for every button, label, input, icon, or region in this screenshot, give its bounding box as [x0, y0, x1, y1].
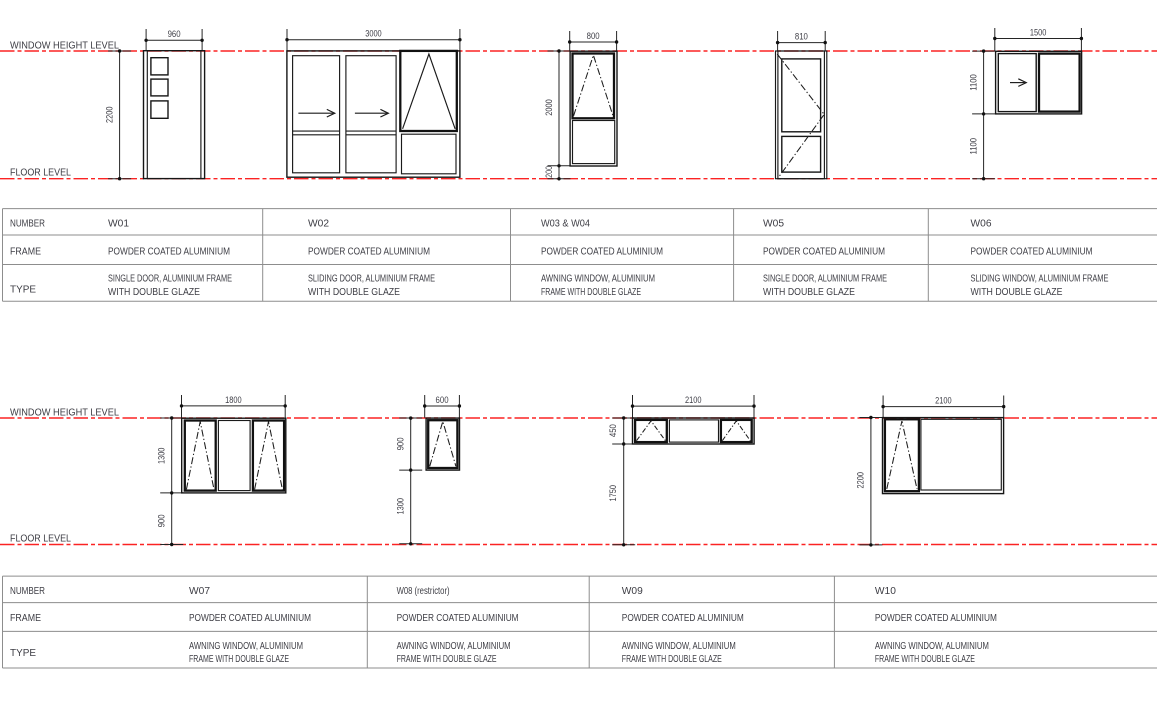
svg-text:W03 & W04: W03 & W04 — [541, 218, 590, 229]
svg-text:TYPE: TYPE — [10, 285, 36, 296]
svg-text:960: 960 — [168, 29, 181, 40]
svg-text:NUMBER: NUMBER — [10, 218, 45, 229]
svg-text:FRAME WITH DOUBLE GLAZE: FRAME WITH DOUBLE GLAZE — [875, 654, 975, 665]
svg-text:1300: 1300 — [395, 498, 406, 515]
svg-text:POWDER COATED ALUMINIUM: POWDER COATED ALUMINIUM — [622, 613, 744, 624]
svg-text:POWDER COATED ALUMINIUM: POWDER COATED ALUMINIUM — [875, 613, 997, 624]
svg-text:WITH DOUBLE GLAZE: WITH DOUBLE GLAZE — [308, 287, 400, 298]
svg-text:FRAME WITH DOUBLE GLAZE: FRAME WITH DOUBLE GLAZE — [189, 654, 289, 665]
svg-text:AWNING WINDOW, ALUMINIUM: AWNING WINDOW, ALUMINIUM — [189, 641, 303, 652]
svg-text:1100: 1100 — [968, 138, 979, 155]
svg-text:POWDER COATED ALUMINIUM: POWDER COATED ALUMINIUM — [541, 246, 663, 257]
svg-text:POWDER COATED ALUMINIUM: POWDER COATED ALUMINIUM — [397, 613, 519, 624]
svg-text:AWNING WINDOW, ALUMINIUM: AWNING WINDOW, ALUMINIUM — [875, 641, 989, 652]
svg-text:600: 600 — [436, 395, 449, 406]
svg-text:AWNING WINDOW, ALUMINIUM: AWNING WINDOW, ALUMINIUM — [541, 274, 655, 285]
svg-text:2200: 2200 — [856, 472, 867, 489]
svg-text:AWNING WINDOW, ALUMINIUM: AWNING WINDOW, ALUMINIUM — [397, 641, 511, 652]
svg-text:2100: 2100 — [935, 396, 952, 407]
svg-text:POWDER COATED ALUMINIUM: POWDER COATED ALUMINIUM — [971, 246, 1093, 257]
svg-text:FRAME WITH DOUBLE GLAZE: FRAME WITH DOUBLE GLAZE — [622, 654, 722, 665]
svg-text:FRAME: FRAME — [10, 613, 41, 624]
svg-text:3000: 3000 — [365, 29, 382, 40]
svg-text:POWDER COATED ALUMINIUM: POWDER COATED ALUMINIUM — [763, 246, 885, 257]
svg-text:FLOOR LEVEL: FLOOR LEVEL — [10, 533, 71, 544]
svg-text:1100: 1100 — [968, 74, 979, 91]
svg-text:POWDER COATED ALUMINIUM: POWDER COATED ALUMINIUM — [108, 246, 230, 257]
svg-text:WITH DOUBLE GLAZE: WITH DOUBLE GLAZE — [763, 287, 855, 298]
svg-text:W05: W05 — [763, 218, 784, 229]
svg-text:SINGLE DOOR, ALUMINIUM FRAME: SINGLE DOOR, ALUMINIUM FRAME — [108, 274, 232, 285]
svg-text:900: 900 — [395, 437, 406, 450]
svg-text:WINDOW HEIGHT LEVEL: WINDOW HEIGHT LEVEL — [10, 40, 119, 51]
svg-text:SLIDING DOOR, ALUMINIUM FRAME: SLIDING DOOR, ALUMINIUM FRAME — [308, 274, 435, 285]
svg-text:W09: W09 — [622, 586, 643, 597]
svg-text:FRAME: FRAME — [10, 246, 41, 257]
svg-text:1800: 1800 — [225, 395, 242, 406]
svg-text:1750: 1750 — [608, 485, 619, 502]
svg-text:W06: W06 — [971, 218, 992, 229]
svg-text:POWDER COATED ALUMINIUM: POWDER COATED ALUMINIUM — [308, 246, 430, 257]
svg-text:810: 810 — [795, 32, 808, 43]
svg-text:WITH DOUBLE GLAZE: WITH DOUBLE GLAZE — [971, 287, 1063, 298]
svg-text:POWDER COATED ALUMINIUM: POWDER COATED ALUMINIUM — [189, 613, 311, 624]
svg-text:W10: W10 — [875, 586, 896, 597]
svg-text:TYPE: TYPE — [10, 648, 36, 659]
svg-text:2200: 2200 — [105, 107, 116, 124]
svg-text:FLOOR LEVEL: FLOOR LEVEL — [10, 167, 71, 178]
svg-text:200: 200 — [544, 166, 555, 178]
svg-text:SINGLE DOOR, ALUMINIUM FRAME: SINGLE DOOR, ALUMINIUM FRAME — [763, 274, 887, 285]
svg-text:W07: W07 — [189, 586, 210, 597]
svg-text:W01: W01 — [108, 218, 129, 229]
svg-text:1300: 1300 — [157, 448, 168, 465]
svg-text:450: 450 — [608, 424, 619, 437]
svg-text:W08 (restrictor): W08 (restrictor) — [397, 586, 450, 597]
svg-text:AWNING WINDOW, ALUMINIUM: AWNING WINDOW, ALUMINIUM — [622, 641, 736, 652]
svg-text:W02: W02 — [308, 218, 329, 229]
svg-text:2000: 2000 — [544, 99, 555, 116]
svg-text:NUMBER: NUMBER — [10, 586, 45, 597]
svg-text:WITH DOUBLE GLAZE: WITH DOUBLE GLAZE — [108, 287, 200, 298]
svg-text:2100: 2100 — [685, 395, 702, 406]
svg-text:900: 900 — [157, 514, 168, 527]
svg-text:WINDOW HEIGHT LEVEL: WINDOW HEIGHT LEVEL — [10, 407, 119, 418]
svg-text:1500: 1500 — [1030, 27, 1047, 38]
svg-text:800: 800 — [587, 31, 600, 42]
svg-text:FRAME WITH DOUBLE GLAZE: FRAME WITH DOUBLE GLAZE — [397, 654, 497, 665]
svg-text:SLIDING WINDOW, ALUMINIUM FRAM: SLIDING WINDOW, ALUMINIUM FRAME — [971, 274, 1109, 285]
svg-text:FRAME WITH DOUBLE GLAZE: FRAME WITH DOUBLE GLAZE — [541, 287, 641, 298]
